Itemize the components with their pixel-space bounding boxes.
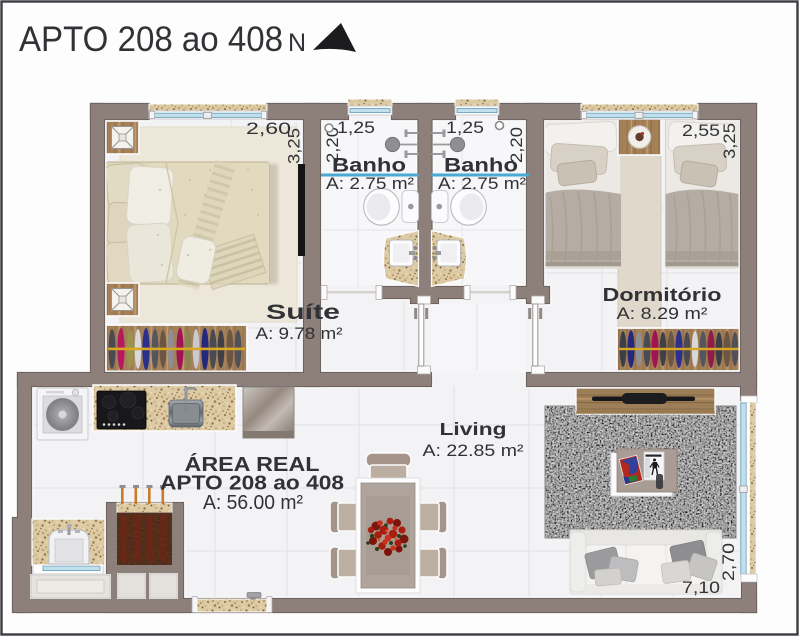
svg-text:A: 8.29 m²: A: 8.29 m²	[617, 304, 708, 323]
svg-text:A: 2.75 m²: A: 2.75 m²	[326, 175, 415, 193]
svg-text:2,20: 2,20	[507, 127, 526, 163]
svg-text:A: 22.85 m²: A: 22.85 m²	[423, 441, 524, 460]
svg-text:2,70: 2,70	[719, 543, 738, 581]
svg-text:3,25: 3,25	[285, 128, 304, 164]
svg-text:Living: Living	[440, 419, 507, 439]
svg-text:N: N	[288, 29, 306, 57]
svg-text:A: 9.78 m²: A: 9.78 m²	[256, 324, 343, 343]
svg-text:2,55: 2,55	[682, 121, 720, 140]
svg-text:A: 56.00 m²: A: 56.00 m²	[203, 492, 303, 514]
svg-text:A: 2.75 m²: A: 2.75 m²	[438, 175, 527, 193]
svg-text:Suíte: Suíte	[266, 301, 340, 324]
svg-text:1,25: 1,25	[337, 118, 375, 137]
svg-text:Dormitório: Dormitório	[603, 284, 722, 305]
svg-text:7,10: 7,10	[682, 578, 720, 597]
svg-text:1,25: 1,25	[446, 118, 484, 137]
svg-text:3,25: 3,25	[720, 123, 739, 159]
svg-text:APTO 208 ao 408: APTO 208 ao 408	[19, 20, 283, 59]
svg-text:Banho: Banho	[332, 156, 406, 177]
